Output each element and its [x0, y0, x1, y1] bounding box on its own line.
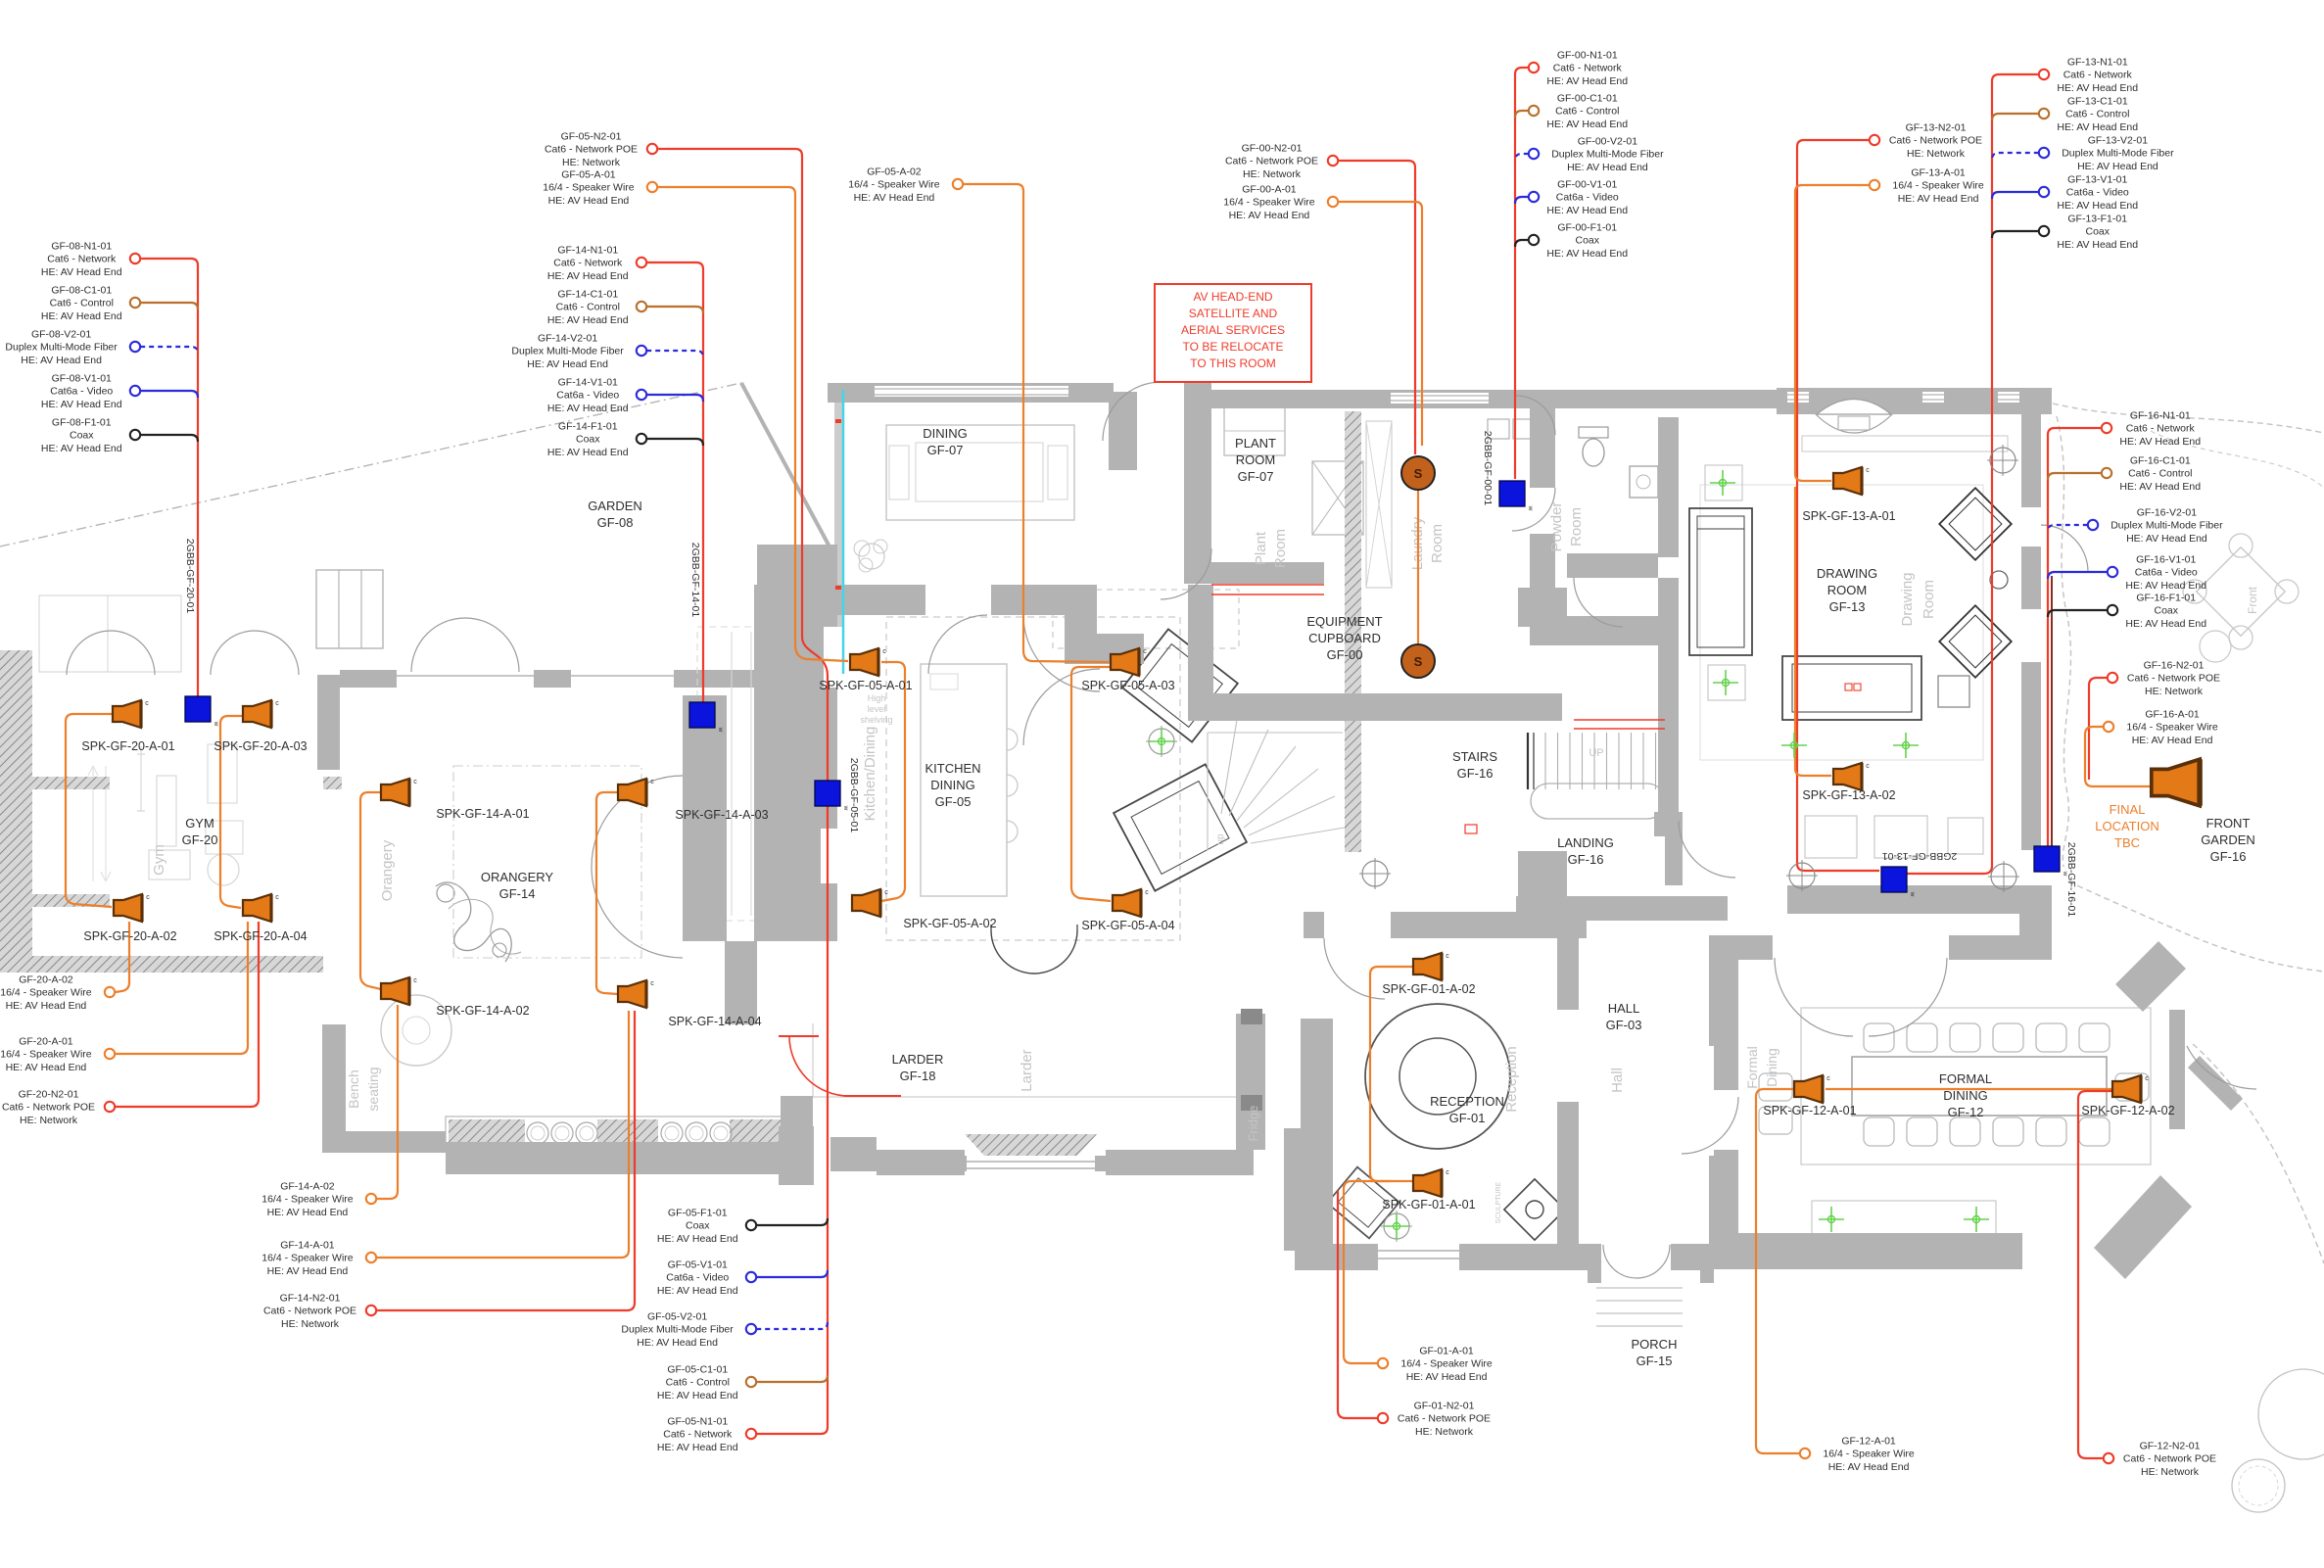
svg-text:GF-05-V2-01: GF-05-V2-01 [647, 1310, 707, 1322]
svg-text:Room: Room [1429, 524, 1446, 563]
svg-text:ROOM: ROOM [1827, 583, 1867, 597]
svg-text:HE: AV Head End: HE: AV Head End [1546, 205, 1628, 216]
svg-text:HE: AV Head End: HE: AV Head End [2057, 200, 2138, 212]
svg-text:SPK-GF-20-A-02: SPK-GF-20-A-02 [83, 929, 176, 943]
svg-text:HE: AV Head End: HE: AV Head End [1898, 193, 1979, 205]
svg-text:GF-05-N2-01: GF-05-N2-01 [561, 130, 622, 142]
svg-text:Cat6 - Network POE: Cat6 - Network POE [2123, 1453, 2216, 1465]
svg-text:2GBB-GF-16-01: 2GBB-GF-16-01 [2065, 842, 2077, 918]
svg-text:GF-16-C1-01: GF-16-C1-01 [2130, 454, 2191, 466]
svg-text:w: w [1909, 891, 1916, 897]
svg-text:HE: AV Head End: HE: AV Head End [2119, 481, 2201, 493]
svg-text:HE: AV Head End: HE: AV Head End [2132, 735, 2213, 746]
svg-text:GF-00-V2-01: GF-00-V2-01 [1578, 135, 1637, 147]
svg-text:Cat6 - Network POE: Cat6 - Network POE [2127, 673, 2220, 685]
svg-text:w: w [213, 721, 219, 727]
svg-text:16/4 - Speaker Wire: 16/4 - Speaker Wire [543, 182, 635, 194]
svg-text:SPK-GF-14-A-02: SPK-GF-14-A-02 [436, 1004, 529, 1018]
svg-text:SPK-GF-20-A-01: SPK-GF-20-A-01 [81, 739, 174, 753]
svg-text:RECEPTION: RECEPTION [1430, 1094, 1504, 1109]
svg-text:HE: AV Head End: HE: AV Head End [21, 355, 102, 366]
svg-text:c: c [2145, 1075, 2149, 1082]
svg-text:GF-08-C1-01: GF-08-C1-01 [51, 284, 112, 296]
svg-text:GF-05-F1-01: GF-05-F1-01 [668, 1207, 728, 1218]
svg-text:SPK-GF-12-A-02: SPK-GF-12-A-02 [2081, 1104, 2174, 1117]
svg-text:Cat6 - Control: Cat6 - Control [666, 1377, 730, 1389]
svg-text:GF-20: GF-20 [182, 832, 218, 847]
svg-text:GF-00-A-01: GF-00-A-01 [1242, 183, 1297, 195]
svg-text:GF-05-A-01: GF-05-A-01 [561, 168, 616, 180]
svg-text:Coax: Coax [2154, 605, 2178, 617]
svg-text:Fridge: Fridge [1246, 1106, 1260, 1142]
svg-text:GF-05-V1-01: GF-05-V1-01 [668, 1259, 728, 1270]
svg-text:w: w [1527, 505, 1534, 511]
svg-text:HE: AV Head End: HE: AV Head End [6, 1062, 87, 1073]
svg-text:Duplex Multi-Mode Fiber: Duplex Multi-Mode Fiber [2111, 520, 2223, 532]
svg-text:HE: AV Head End: HE: AV Head End [1546, 248, 1628, 260]
svg-text:SPK-GF-01-A-01: SPK-GF-01-A-01 [1382, 1198, 1475, 1212]
svg-text:GF-00-C1-01: GF-00-C1-01 [1557, 92, 1618, 104]
svg-text:GF-05-C1-01: GF-05-C1-01 [667, 1363, 728, 1375]
svg-text:GF-08-F1-01: GF-08-F1-01 [52, 416, 112, 428]
svg-text:EQUIPMENT: EQUIPMENT [1306, 614, 1382, 629]
svg-text:Cat6 - Control: Cat6 - Control [556, 302, 620, 313]
svg-text:GF-13-N1-01: GF-13-N1-01 [2067, 56, 2128, 68]
svg-text:GF-20-N2-01: GF-20-N2-01 [19, 1088, 79, 1100]
svg-text:Cat6 - Network POE: Cat6 - Network POE [2, 1102, 95, 1114]
svg-text:HE: Network: HE: Network [2141, 1466, 2200, 1478]
svg-text:16/4 - Speaker Wire: 16/4 - Speaker Wire [261, 1194, 354, 1206]
svg-text:DRAWING: DRAWING [1817, 566, 1877, 581]
svg-text:c: c [1446, 1169, 1449, 1176]
svg-text:HE: AV Head End: HE: AV Head End [267, 1207, 349, 1218]
svg-text:GF-07: GF-07 [1238, 469, 1274, 484]
svg-text:PLANT: PLANT [1235, 436, 1276, 451]
svg-text:AERIAL SERVICES: AERIAL SERVICES [1181, 323, 1285, 337]
svg-text:16/4 - Speaker Wire: 16/4 - Speaker Wire [1223, 197, 1315, 209]
svg-text:GF-20-A-02: GF-20-A-02 [19, 974, 73, 985]
svg-text:seating: seating [365, 1067, 381, 1111]
svg-text:GF-16-N2-01: GF-16-N2-01 [2144, 659, 2205, 671]
svg-text:HE: AV Head End: HE: AV Head End [41, 399, 122, 410]
svg-text:GF-14-F1-01: GF-14-F1-01 [558, 420, 618, 432]
svg-text:Cat6 - Network POE: Cat6 - Network POE [545, 144, 638, 156]
svg-text:GF-00-N1-01: GF-00-N1-01 [1557, 49, 1618, 61]
svg-text:S: S [1414, 654, 1423, 669]
svg-text:GF-03: GF-03 [1606, 1018, 1642, 1032]
svg-text:GARDEN: GARDEN [588, 499, 642, 513]
svg-text:Duplex Multi-Mode Fiber: Duplex Multi-Mode Fiber [621, 1324, 734, 1336]
svg-text:GF-14: GF-14 [499, 886, 536, 901]
svg-text:GF-16-V2-01: GF-16-V2-01 [2137, 506, 2197, 518]
svg-text:GYM: GYM [185, 816, 214, 831]
svg-text:GF-05: GF-05 [935, 794, 972, 809]
svg-text:SATELLITE AND: SATELLITE AND [1189, 307, 1278, 320]
svg-text:Coax: Coax [70, 430, 94, 442]
svg-text:Cat6a - Video: Cat6a - Video [50, 386, 113, 398]
svg-text:2GBB-GF-05-01: 2GBB-GF-05-01 [848, 758, 860, 833]
svg-text:GF-00-F1-01: GF-00-F1-01 [1557, 221, 1617, 233]
svg-text:LOCATION: LOCATION [2095, 819, 2159, 833]
svg-text:HE: AV Head End: HE: AV Head End [41, 266, 122, 278]
svg-text:UP: UP [1589, 747, 1603, 759]
svg-text:SPK-GF-13-A-02: SPK-GF-13-A-02 [1802, 788, 1895, 802]
svg-text:2GBB-GF-13-01: 2GBB-GF-13-01 [1882, 850, 1958, 862]
svg-text:GF-12-N2-01: GF-12-N2-01 [2140, 1440, 2201, 1451]
svg-text:HE: AV Head End: HE: AV Head End [547, 270, 629, 282]
svg-text:HE: AV Head End: HE: AV Head End [2057, 82, 2138, 94]
svg-text:GF-12-A-01: GF-12-A-01 [1841, 1435, 1896, 1447]
svg-text:HE: AV Head End: HE: AV Head End [1229, 210, 1310, 221]
svg-text:HE: AV Head End: HE: AV Head End [2057, 239, 2138, 251]
svg-text:Cat6 - Network POE: Cat6 - Network POE [1889, 135, 1982, 147]
svg-text:c: c [1826, 1075, 1830, 1082]
svg-text:SPK-GF-14-A-03: SPK-GF-14-A-03 [675, 808, 768, 822]
svg-text:HE: AV Head End: HE: AV Head End [1406, 1371, 1488, 1383]
svg-text:HE: AV Head End: HE: AV Head End [2125, 618, 2206, 630]
svg-text:GF-14-V2-01: GF-14-V2-01 [538, 332, 597, 344]
svg-text:TBC: TBC [2114, 835, 2140, 850]
svg-text:GF-12: GF-12 [1948, 1105, 1984, 1119]
svg-text:STAIRS: STAIRS [1452, 749, 1497, 764]
svg-text:ROOM: ROOM [1236, 452, 1275, 467]
svg-text:FINAL: FINAL [2110, 802, 2146, 817]
svg-text:Larder: Larder [1019, 1049, 1035, 1091]
svg-text:16/4 - Speaker Wire: 16/4 - Speaker Wire [0, 987, 92, 999]
svg-text:HE: Network: HE: Network [1243, 168, 1302, 180]
svg-text:GF-16: GF-16 [1457, 766, 1494, 781]
svg-text:GF-16-V1-01: GF-16-V1-01 [2136, 553, 2196, 565]
svg-text:Cat6 - Network POE: Cat6 - Network POE [263, 1306, 356, 1317]
svg-text:HE: AV Head End: HE: AV Head End [41, 310, 122, 322]
svg-text:Powder: Powder [1548, 502, 1565, 552]
svg-text:Cat6 - Network: Cat6 - Network [663, 1429, 733, 1441]
svg-text:SPK-GF-20-A-03: SPK-GF-20-A-03 [213, 739, 307, 753]
svg-text:HE: AV Head End: HE: AV Head End [2125, 580, 2206, 592]
svg-text:S: S [1414, 466, 1423, 481]
svg-text:GF-16-N1-01: GF-16-N1-01 [2130, 409, 2191, 421]
svg-text:Dining: Dining [1764, 1048, 1779, 1087]
svg-text:GF-01-N2-01: GF-01-N2-01 [1414, 1400, 1475, 1411]
svg-text:Kitchen/Dining: Kitchen/Dining [862, 727, 878, 822]
svg-text:HE: Network: HE: Network [562, 157, 621, 168]
svg-text:Cat6 - Control: Cat6 - Control [2128, 468, 2192, 480]
svg-text:HE: AV Head End: HE: AV Head End [547, 314, 629, 326]
svg-text:ORANGERY: ORANGERY [481, 870, 553, 884]
svg-text:2GBB-GF-20-01: 2GBB-GF-20-01 [184, 539, 196, 614]
svg-text:HE: AV Head End: HE: AV Head End [2126, 533, 2207, 545]
svg-text:c: c [413, 977, 417, 984]
svg-text:Cat6 - Network POE: Cat6 - Network POE [1225, 156, 1318, 167]
svg-text:level: level [868, 704, 886, 714]
svg-text:Reception: Reception [1503, 1046, 1520, 1113]
svg-text:HE: Network: HE: Network [281, 1318, 340, 1330]
svg-text:HE: AV Head End: HE: AV Head End [2057, 121, 2138, 133]
svg-text:HE: AV Head End: HE: AV Head End [854, 192, 935, 204]
svg-text:SPK-GF-20-A-04: SPK-GF-20-A-04 [213, 929, 307, 943]
svg-text:SPK-GF-13-A-01: SPK-GF-13-A-01 [1802, 509, 1895, 523]
svg-text:Front: Front [2246, 586, 2259, 614]
svg-text:HE: AV Head End: HE: AV Head End [41, 443, 122, 454]
svg-text:c: c [1145, 889, 1149, 896]
svg-text:GF-08-N1-01: GF-08-N1-01 [51, 240, 112, 252]
svg-text:c: c [1446, 953, 1449, 960]
svg-text:Cat6 - Network: Cat6 - Network [2126, 423, 2196, 435]
svg-text:Drawing: Drawing [1899, 572, 1916, 626]
svg-text:GF-14-A-02: GF-14-A-02 [280, 1180, 335, 1192]
svg-text:GF-00-V1-01: GF-00-V1-01 [1557, 178, 1617, 190]
svg-text:Hall: Hall [1609, 1068, 1626, 1093]
svg-text:shelving: shelving [860, 715, 892, 725]
svg-text:GF-08-V2-01: GF-08-V2-01 [31, 328, 91, 340]
svg-text:Cat6 - Network: Cat6 - Network [553, 258, 623, 269]
svg-text:GF-15: GF-15 [1636, 1354, 1673, 1368]
svg-text:DINING: DINING [1943, 1088, 1988, 1103]
svg-text:GF-13-V1-01: GF-13-V1-01 [2067, 173, 2127, 185]
svg-text:HALL: HALL [1608, 1001, 1640, 1016]
svg-text:SPK-GF-05-A-01: SPK-GF-05-A-01 [819, 679, 912, 692]
svg-text:GF-08: GF-08 [597, 515, 634, 530]
svg-text:HE: AV Head End: HE: AV Head End [1546, 75, 1628, 87]
svg-text:16/4 - Speaker Wire: 16/4 - Speaker Wire [1892, 180, 1984, 192]
svg-text:HE: AV Head End: HE: AV Head End [547, 447, 629, 458]
svg-text:SPK-GF-14-A-04: SPK-GF-14-A-04 [668, 1015, 761, 1028]
svg-text:SPK-GF-01-A-02: SPK-GF-01-A-02 [1382, 982, 1475, 996]
svg-text:Plant: Plant [1253, 531, 1269, 565]
svg-text:FORMAL: FORMAL [1939, 1071, 1992, 1086]
svg-text:CUPBOARD: CUPBOARD [1308, 631, 1381, 645]
svg-text:GF-00-N2-01: GF-00-N2-01 [1242, 142, 1303, 154]
svg-text:GF-18: GF-18 [900, 1069, 936, 1083]
svg-text:GF-08-V1-01: GF-08-V1-01 [52, 372, 112, 384]
svg-text:Cat6 - Network: Cat6 - Network [1553, 63, 1623, 74]
svg-text:HE: Network: HE: Network [2145, 686, 2204, 697]
svg-text:Room: Room [1568, 507, 1585, 546]
svg-text:16/4 - Speaker Wire: 16/4 - Speaker Wire [1823, 1449, 1915, 1460]
svg-text:PORCH: PORCH [1632, 1337, 1678, 1352]
svg-text:TO THIS ROOM: TO THIS ROOM [1190, 356, 1276, 370]
svg-text:LARDER: LARDER [892, 1052, 944, 1067]
svg-text:GF-01-A-01: GF-01-A-01 [1419, 1345, 1474, 1356]
svg-text:Formal: Formal [1744, 1046, 1760, 1089]
svg-text:c: c [650, 779, 654, 785]
svg-text:Gym: Gym [151, 844, 167, 876]
svg-text:DINING: DINING [930, 778, 975, 792]
svg-text:AV HEAD-END: AV HEAD-END [1193, 290, 1272, 304]
svg-text:Cat6 - Control: Cat6 - Control [50, 298, 114, 309]
svg-text:HE: AV Head End: HE: AV Head End [657, 1233, 738, 1245]
svg-text:Cat6 - Control: Cat6 - Control [2065, 109, 2129, 120]
svg-text:c: c [884, 889, 888, 896]
svg-text:Cat6a - Video: Cat6a - Video [556, 390, 619, 402]
svg-text:GF-20-A-01: GF-20-A-01 [19, 1035, 73, 1047]
svg-text:w: w [717, 727, 724, 733]
svg-text:FRONT: FRONT [2206, 816, 2251, 831]
svg-text:Duplex Multi-Mode Fiber: Duplex Multi-Mode Fiber [511, 346, 624, 357]
svg-text:GF-14-C1-01: GF-14-C1-01 [557, 288, 618, 300]
svg-text:HE: AV Head End: HE: AV Head End [637, 1337, 718, 1349]
svg-text:Duplex Multi-Mode Fiber: Duplex Multi-Mode Fiber [5, 342, 118, 354]
svg-text:GF-14-A-01: GF-14-A-01 [280, 1239, 335, 1251]
svg-text:Orangery: Orangery [379, 839, 396, 901]
svg-text:GF-00: GF-00 [1327, 647, 1363, 662]
svg-text:SPK-GF-12-A-01: SPK-GF-12-A-01 [1763, 1104, 1856, 1117]
svg-text:16/4 - Speaker Wire: 16/4 - Speaker Wire [261, 1253, 354, 1264]
svg-text:SCULPTURE: SCULPTURE [1495, 1181, 1502, 1223]
svg-text:GF-16: GF-16 [2210, 849, 2247, 864]
svg-text:2GBB-GF-00-01: 2GBB-GF-00-01 [1482, 431, 1494, 506]
svg-text:c: c [882, 648, 886, 655]
svg-text:c: c [1143, 648, 1147, 655]
svg-text:Coax: Coax [686, 1220, 710, 1232]
svg-text:Cat6a - Video: Cat6a - Video [2066, 187, 2129, 199]
svg-text:HE: AV Head End: HE: AV Head End [2119, 436, 2201, 448]
svg-text:HE: AV Head End: HE: AV Head End [527, 358, 608, 370]
svg-text:Coax: Coax [1575, 235, 1599, 247]
svg-text:Cat6 - Network: Cat6 - Network [2063, 70, 2133, 81]
svg-text:HE: AV Head End: HE: AV Head End [657, 1442, 738, 1453]
svg-text:Room: Room [1272, 529, 1289, 568]
svg-text:GF-05-A-02: GF-05-A-02 [867, 166, 922, 177]
svg-text:c: c [1866, 467, 1870, 474]
svg-text:16/4 - Speaker Wire: 16/4 - Speaker Wire [848, 179, 940, 191]
svg-text:HE: AV Head End: HE: AV Head End [548, 195, 630, 207]
svg-text:Duplex Multi-Mode Fiber: Duplex Multi-Mode Fiber [2062, 148, 2174, 160]
svg-text:HE: Network: HE: Network [20, 1115, 78, 1126]
svg-text:High: High [868, 693, 886, 703]
svg-text:Cat6 - Control: Cat6 - Control [1555, 106, 1619, 118]
svg-text:SPK-GF-05-A-03: SPK-GF-05-A-03 [1081, 679, 1174, 692]
svg-text:GF-13-C1-01: GF-13-C1-01 [2067, 95, 2128, 107]
svg-text:HE: AV Head End: HE: AV Head End [6, 1000, 87, 1012]
svg-text:HE: Network: HE: Network [1907, 148, 1966, 160]
svg-text:c: c [650, 980, 654, 987]
svg-text:GF-13-A-01: GF-13-A-01 [1911, 166, 1966, 178]
svg-text:GF-13: GF-13 [1829, 599, 1866, 614]
svg-text:16/4 - Speaker Wire: 16/4 - Speaker Wire [0, 1049, 92, 1061]
svg-text:GF-13-F1-01: GF-13-F1-01 [2067, 213, 2127, 224]
svg-text:GF-07: GF-07 [927, 443, 964, 457]
svg-text:HE: Network: HE: Network [1415, 1426, 1474, 1438]
svg-text:c: c [275, 894, 279, 901]
svg-text:KITCHEN: KITCHEN [925, 761, 980, 776]
svg-text:GF-16: GF-16 [1568, 852, 1604, 867]
svg-text:c: c [145, 700, 149, 707]
svg-text:2GBB-GF-14-01: 2GBB-GF-14-01 [689, 543, 701, 618]
svg-text:GF-14-V1-01: GF-14-V1-01 [558, 376, 618, 388]
svg-text:c: c [275, 700, 279, 707]
svg-text:HE: AV Head End: HE: AV Head End [1567, 162, 1648, 173]
svg-text:HE: AV Head End: HE: AV Head End [657, 1285, 738, 1297]
svg-text:c: c [413, 779, 417, 785]
svg-text:HE: AV Head End: HE: AV Head End [547, 403, 629, 414]
svg-text:GF-01: GF-01 [1449, 1111, 1486, 1125]
svg-text:DINING: DINING [923, 426, 968, 441]
svg-text:Coax: Coax [576, 434, 600, 446]
svg-text:c: c [1866, 763, 1870, 770]
svg-text:HE: AV Head End: HE: AV Head End [2077, 161, 2158, 172]
svg-text:TO BE RELOCATE: TO BE RELOCATE [1183, 340, 1284, 354]
svg-text:HE: AV Head End: HE: AV Head End [1546, 119, 1628, 130]
svg-text:GARDEN: GARDEN [2201, 832, 2255, 847]
svg-text:Coax: Coax [2085, 226, 2110, 238]
svg-text:SPK-GF-05-A-02: SPK-GF-05-A-02 [903, 917, 996, 930]
svg-text:SPK-GF-14-A-01: SPK-GF-14-A-01 [436, 807, 529, 821]
svg-text:LANDING: LANDING [1557, 835, 1614, 850]
svg-text:GF-14-N1-01: GF-14-N1-01 [557, 244, 618, 256]
svg-text:SPK-GF-05-A-04: SPK-GF-05-A-04 [1081, 919, 1174, 932]
svg-text:Room: Room [1921, 580, 1937, 619]
svg-text:Bench: Bench [346, 1069, 361, 1109]
svg-text:GF-14-N2-01: GF-14-N2-01 [280, 1292, 341, 1304]
svg-text:Cat6a - Video: Cat6a - Video [2135, 567, 2198, 579]
svg-text:up: up [1215, 833, 1226, 845]
svg-text:HE: AV Head End: HE: AV Head End [267, 1265, 349, 1277]
svg-text:HE: AV Head End: HE: AV Head End [657, 1390, 738, 1402]
svg-text:GF-05-N1-01: GF-05-N1-01 [667, 1415, 728, 1427]
svg-text:GF-13-N2-01: GF-13-N2-01 [1906, 121, 1967, 133]
svg-text:16/4 - Speaker Wire: 16/4 - Speaker Wire [2126, 722, 2218, 734]
svg-text:c: c [146, 894, 150, 901]
svg-text:GF-16-A-01: GF-16-A-01 [2145, 708, 2200, 720]
svg-text:HE: AV Head End: HE: AV Head End [1828, 1461, 1910, 1473]
svg-text:Cat6a - Video: Cat6a - Video [1556, 192, 1619, 204]
svg-text:GF-16-F1-01: GF-16-F1-01 [2136, 592, 2196, 603]
svg-text:w: w [842, 805, 849, 811]
svg-text:GF-13-V2-01: GF-13-V2-01 [2088, 134, 2148, 146]
svg-text:Cat6a - Video: Cat6a - Video [666, 1272, 729, 1284]
svg-text:Duplex Multi-Mode Fiber: Duplex Multi-Mode Fiber [1551, 149, 1664, 161]
svg-text:Cat6 - Network POE: Cat6 - Network POE [1398, 1413, 1491, 1425]
svg-text:16/4 - Speaker Wire: 16/4 - Speaker Wire [1400, 1358, 1493, 1370]
svg-text:Cat6 - Network: Cat6 - Network [47, 254, 117, 265]
